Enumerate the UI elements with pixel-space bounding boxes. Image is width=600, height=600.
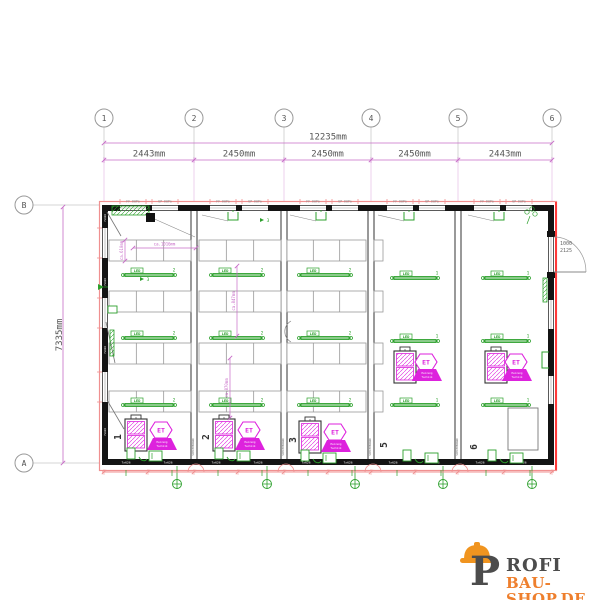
table-stub <box>374 343 383 364</box>
table-row <box>109 343 191 364</box>
door-leaf-line <box>107 212 121 236</box>
wall-module-label: 7x626 <box>211 461 220 465</box>
door-height-dim: 2125 <box>560 248 572 254</box>
table-row <box>109 391 191 412</box>
earth-symbol <box>173 466 182 489</box>
led-count: 2 <box>261 268 264 274</box>
led-label: LED <box>403 334 411 339</box>
bay-number: 2 <box>201 434 212 440</box>
u-fixture <box>494 212 504 220</box>
et-hexagon: ET <box>150 422 172 438</box>
profi-bau-shop-logo: P ROFI BAU-SHOP.DE <box>456 544 592 598</box>
table-stub <box>374 240 383 261</box>
stove-unit: V <box>213 415 235 451</box>
table-row <box>109 291 191 312</box>
wall-panel-label: UP 60Pa <box>512 200 526 204</box>
et-label: ET <box>157 426 165 434</box>
left-dimension: 7335mm <box>55 205 65 465</box>
storage-rect <box>508 408 538 450</box>
wall-panel-label: UP 60Pa <box>158 200 172 204</box>
wall-module-label: 7x626 <box>343 461 352 465</box>
wall-panel-label: UP 60Pa <box>425 200 439 204</box>
overall-width-dimension: 12235mm <box>309 133 347 143</box>
wall-module-label: 7x626 <box>253 461 262 465</box>
led-bar: LED2 <box>122 331 177 340</box>
led-count: 2 <box>349 268 352 274</box>
led-count: 1 <box>436 334 439 340</box>
overall-height-dimension: 7335mm <box>55 319 65 352</box>
led-count: 2 <box>261 331 264 337</box>
wall-radiator <box>110 330 114 356</box>
interior-dimension: ca.610mm <box>119 240 124 260</box>
bay-width-dimension: 2443mm <box>133 150 166 160</box>
table-row <box>199 240 281 261</box>
led-count: 1 <box>527 271 530 277</box>
wall-panel-label: FF 60Pa <box>216 200 230 204</box>
table-stub <box>374 291 383 312</box>
led-bar: LED1 <box>391 271 440 280</box>
u-fixture <box>404 212 414 220</box>
led-count: 2 <box>349 398 352 404</box>
door-jamb <box>547 231 555 237</box>
led-count: 2 <box>261 398 264 404</box>
led-bars: LED2LED2LED2LED2LED2LED2LED2LED2LED2LED1… <box>122 268 531 407</box>
u-fixture <box>316 212 326 220</box>
junction-box <box>146 213 155 222</box>
led-bar: LED2 <box>298 268 353 277</box>
stove-unit: V <box>299 417 321 453</box>
trapezoid-text: Technik <box>245 444 256 448</box>
leader-line <box>290 215 316 221</box>
led-label: LED <box>310 268 318 273</box>
partition-label: SCHIEBEWAND <box>455 438 459 456</box>
et-hexagon: ET <box>415 354 437 370</box>
earth-symbol <box>439 466 448 489</box>
led-label: LED <box>134 398 142 403</box>
wall-module-label: 7x626 <box>103 278 107 286</box>
wall-panel-label: FF 60Pa <box>126 200 140 204</box>
wall-module-label: 7x626 <box>475 461 484 465</box>
grid-column-label: 6 <box>550 114 555 123</box>
earth-symbol <box>351 466 360 489</box>
partition-label: SCHIEBEWAND <box>368 438 372 456</box>
u-fixture <box>228 212 238 220</box>
interior-dimension: ca.847mm <box>231 291 236 311</box>
led-count: 2 <box>349 331 352 337</box>
wall-bracket <box>542 352 549 368</box>
et-label: ET <box>245 426 253 434</box>
vent-hatch <box>112 206 149 215</box>
led-label: LED <box>222 268 230 273</box>
leader-line <box>468 215 494 221</box>
bay-width-dimension: 2450mm <box>223 150 256 160</box>
door-width-dim: 1000 <box>560 241 572 247</box>
bay-number: 1 <box>113 434 124 440</box>
bay-width-dimension: 2443mm <box>489 150 522 160</box>
earth-symbol <box>528 466 537 489</box>
wall-module-label: 7x626 <box>103 346 107 354</box>
top-dimensions: 12235mm2443mm2450mm2450mm2450mm2443mm <box>102 133 554 164</box>
led-count: 1 <box>527 398 530 404</box>
wall-panel-label: FF 60Pa <box>306 200 320 204</box>
trapezoid-text: Heizung <box>157 440 168 444</box>
partition-label: SCHIEBEWAND <box>191 438 195 456</box>
trapezoid-text: Technik <box>331 446 342 450</box>
et-label: ET <box>512 358 520 366</box>
trapezoid-text: Heizung <box>245 440 256 444</box>
led-label: LED <box>310 398 318 403</box>
wall-module-label: 7x626 <box>388 461 397 465</box>
led-count: 2 <box>173 268 176 274</box>
table-row <box>199 391 281 412</box>
et-label: ET <box>422 358 430 366</box>
table-row <box>287 240 366 261</box>
trapezoid-text: Heizung <box>512 371 523 375</box>
et-label: ET <box>331 428 339 436</box>
floor-plan-page: 123456BA12235mm2443mm2450mm2450mm2450mm2… <box>0 0 600 600</box>
led-count: 2 <box>173 331 176 337</box>
interior-dimension: ca.870mm <box>224 378 229 398</box>
led-count: 1 <box>436 398 439 404</box>
leader-line <box>202 215 228 221</box>
door-jamb <box>547 272 555 278</box>
grid-row-label: A <box>22 459 27 468</box>
logo-letter-p: P <box>470 552 500 592</box>
led-bar: LED2 <box>298 331 353 340</box>
wall-panel-label: FF 60Pa <box>393 200 407 204</box>
wall-panel-label: FF 60Pa <box>480 200 494 204</box>
led-label: LED <box>494 334 502 339</box>
stove-unit: V <box>125 415 147 451</box>
wall-module-label: 7x626 <box>103 428 107 436</box>
trapezoid-text: Technik <box>157 444 168 448</box>
led-label: LED <box>403 398 411 403</box>
leader-line <box>378 215 404 221</box>
grid-column-label: 1 <box>102 114 107 123</box>
wall-module-label: 7x626 <box>163 461 172 465</box>
green-mark: 3 <box>267 218 270 224</box>
led-bar: LED1 <box>482 271 531 280</box>
led-bar: LED2 <box>122 268 177 277</box>
table-row <box>287 391 366 412</box>
logo-text-domain: BAU-SHOP.DE <box>506 575 592 600</box>
et-hexagon: ET <box>238 422 260 438</box>
bay-width-dimension: 2450mm <box>398 150 431 160</box>
led-label: LED <box>494 398 502 403</box>
led-label: LED <box>403 271 411 276</box>
interior-dimension: ca.1016mm <box>154 242 176 247</box>
grid-column-label: 5 <box>456 114 461 123</box>
table-stub <box>374 391 383 412</box>
bay-number: 5 <box>379 442 390 448</box>
leader-line <box>150 217 195 237</box>
led-bar: LED1 <box>482 398 531 407</box>
table-row <box>287 343 366 364</box>
grid-column-label: 2 <box>192 114 197 123</box>
grid-column-label: 3 <box>282 114 287 123</box>
earth-symbol <box>263 466 272 489</box>
wall-module-label: 7x626 <box>103 214 107 222</box>
grid-row-label: B <box>22 201 27 210</box>
trapezoid-text: Technik <box>512 375 523 379</box>
logo-text-rofi: ROFI <box>506 557 562 575</box>
table-row <box>199 343 281 364</box>
led-bar: LED1 <box>391 398 440 407</box>
grid-column-label: 4 <box>369 114 374 123</box>
wall-switch <box>108 306 117 313</box>
led-bar: LED1 <box>391 334 440 343</box>
led-label: LED <box>222 331 230 336</box>
led-label: LED <box>310 331 318 336</box>
green-mark: 3 <box>147 277 150 283</box>
bay-number: 3 <box>288 437 299 443</box>
et-hexagon: ET <box>324 424 346 440</box>
led-bar: LED1 <box>482 334 531 343</box>
trapezoid-text: Heizung <box>331 442 342 446</box>
grid-markers: 123456BA <box>15 109 561 472</box>
floor-plan-drawing: 123456BA12235mm2443mm2450mm2450mm2450mm2… <box>0 0 600 600</box>
wall-module-label: 7x626 <box>121 461 130 465</box>
trapezoid-text: Technik <box>422 375 433 379</box>
equipment-trapezoid: HeizungTechnik <box>147 438 177 450</box>
partition-label: SCHIEBEWAND <box>281 438 285 456</box>
table-row <box>199 291 281 312</box>
table-row <box>287 291 366 312</box>
bay-width-dimension: 2450mm <box>311 150 344 160</box>
wall-radiator <box>543 278 547 302</box>
wall-panel-label: UP 60Pa <box>338 200 352 204</box>
trapezoid-text: Heizung <box>422 371 433 375</box>
led-count: 1 <box>436 271 439 277</box>
et-hexagon: ET <box>505 354 527 370</box>
wall-panel-label: UP 60Pa <box>248 200 262 204</box>
led-label: LED <box>134 268 142 273</box>
equipment-trapezoid: HeizungTechnik <box>235 438 265 450</box>
led-count: 2 <box>173 398 176 404</box>
stove-unit: V <box>394 347 416 383</box>
bay-number: 6 <box>469 444 480 450</box>
led-label: LED <box>494 271 502 276</box>
led-count: 1 <box>527 334 530 340</box>
equipment-trapezoid: HeizungTechnik <box>321 440 351 452</box>
led-label: LED <box>134 331 142 336</box>
